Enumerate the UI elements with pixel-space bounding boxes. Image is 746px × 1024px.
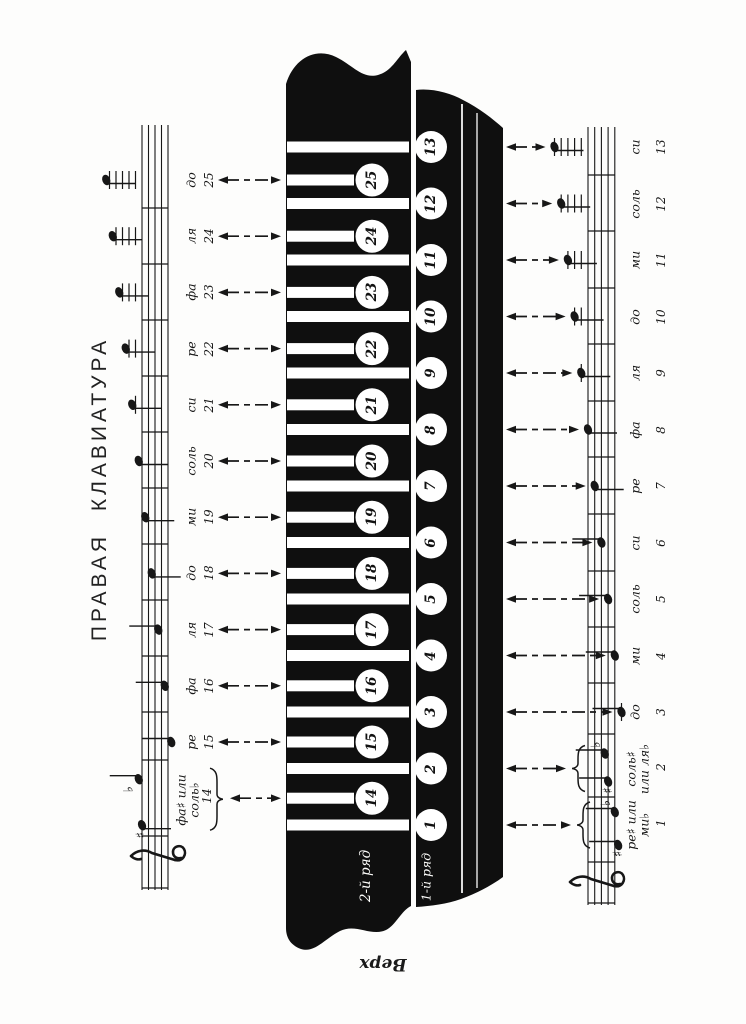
- note-head: [120, 342, 131, 355]
- note-head: [582, 423, 593, 436]
- note-brace: [572, 746, 585, 792]
- note-head: [140, 511, 151, 524]
- key-bar-row2: [287, 231, 354, 242]
- left-arrow-head: [271, 345, 281, 353]
- note-number-label: 12: [654, 196, 668, 211]
- button-number: 6: [423, 538, 439, 547]
- right-arrow-head: [556, 313, 566, 321]
- note-number-label: 6: [654, 539, 668, 547]
- button-number: 17: [364, 620, 380, 639]
- treble-clef-stroke: [173, 846, 185, 860]
- note-name-label: ре: [184, 341, 199, 356]
- note-number-label: 17: [202, 622, 216, 637]
- note-head: [609, 649, 620, 662]
- note-name-label: си: [184, 397, 199, 412]
- button-number: 20: [364, 452, 380, 471]
- note-name-label: ми: [628, 646, 643, 664]
- note-number-label: 10: [654, 309, 668, 324]
- note-head: [127, 398, 138, 411]
- key-bar-row1: [287, 424, 409, 435]
- key-bar-row1: [287, 763, 409, 774]
- note-head: [166, 736, 177, 749]
- orientation-label-top: Верх: [359, 954, 406, 974]
- key-bar-row2: [287, 287, 354, 298]
- note-name-label: ля: [628, 365, 643, 381]
- note-number-label: 5: [654, 595, 668, 603]
- keyboard-row2-label: 2-й ряд: [358, 850, 374, 902]
- accidental-sharp: ♯: [601, 787, 616, 793]
- button-number: 4: [423, 651, 439, 660]
- left-arrow-head: [271, 738, 281, 746]
- treble-clef-stroke: [612, 872, 624, 886]
- note-name-label: си: [628, 139, 643, 154]
- note-number-label: 8: [654, 426, 668, 434]
- note-name-label: ми: [184, 508, 199, 526]
- key-bar-row2: [287, 343, 354, 354]
- treble-clef-stroke: [570, 882, 580, 885]
- left-arrow-head: [271, 176, 281, 184]
- accidental-flat: ♭: [599, 800, 614, 806]
- key-bar-row1: [287, 481, 409, 492]
- key-bar-row1: [287, 820, 409, 831]
- note-name-label: до: [628, 309, 643, 324]
- button-number: 23: [364, 283, 380, 302]
- accidental-sharp: ♯: [134, 832, 149, 838]
- note-head: [602, 775, 613, 788]
- note-name-label: до: [184, 566, 199, 581]
- treble-clef-icon: [131, 846, 185, 860]
- accidental-flat: ♭: [122, 786, 137, 792]
- note-number-label: 14: [200, 789, 214, 804]
- scanned-book-page: ♭♯♭♯♭♯ ПРАВАЯ КЛАВИАТУРА 2-й ряд 1-й ряд…: [0, 0, 746, 1024]
- note-head: [101, 174, 112, 187]
- note-name-label: или ля♭: [637, 743, 652, 793]
- note-number-label: 19: [202, 510, 216, 525]
- left-arrow-head: [271, 232, 281, 240]
- note-number-label: 23: [202, 285, 216, 300]
- note-name-label: до: [184, 172, 199, 187]
- note-number-label: 20: [202, 453, 216, 468]
- button-number: 12: [423, 194, 439, 213]
- left-arrow-head: [271, 289, 281, 297]
- note-number-label: 24: [202, 229, 216, 244]
- key-bar-row1: [287, 198, 409, 209]
- button-number: 22: [364, 339, 380, 358]
- note-name-label: фа: [184, 284, 199, 301]
- note-head: [146, 567, 157, 580]
- note-name-label: си: [628, 535, 643, 550]
- left-arrow-head: [271, 626, 281, 634]
- note-head: [114, 286, 125, 299]
- key-bar-row2: [287, 624, 354, 635]
- button-number: 1: [423, 820, 439, 829]
- note-number-label: 1: [654, 819, 668, 827]
- note-name-label: фа: [628, 421, 643, 438]
- key-bar-row2: [287, 568, 354, 579]
- key-bar-row1: [287, 650, 409, 661]
- note-number-label: 16: [202, 678, 216, 693]
- key-bar-row2: [287, 399, 354, 410]
- note-head: [599, 747, 610, 760]
- treble-clef-icon: [570, 872, 624, 886]
- note-number-label: 13: [654, 139, 668, 154]
- note-name-label: ми: [628, 251, 643, 269]
- note-number-label: 3: [654, 708, 668, 716]
- left-arrow-head: [271, 401, 281, 409]
- note-head: [602, 593, 613, 606]
- button-number: 13: [423, 138, 439, 157]
- key-bar-row2: [287, 175, 354, 186]
- button-number: 9: [423, 368, 439, 377]
- button-number: 15: [364, 733, 380, 752]
- key-bar-row2: [287, 456, 354, 467]
- key-bar-row1: [287, 594, 409, 605]
- note-name-label: соль: [628, 584, 643, 613]
- key-bar-row1: [287, 255, 409, 266]
- key-bar-row1: [287, 368, 409, 379]
- note-number-label: 9: [654, 369, 668, 377]
- note-head: [589, 480, 600, 493]
- note-number-label: 18: [202, 566, 216, 581]
- button-number: 7: [423, 481, 439, 490]
- note-number-label: 2: [654, 763, 668, 771]
- note-head: [133, 455, 144, 468]
- note-number-label: 25: [202, 172, 216, 187]
- page-title: ПРАВАЯ КЛАВИАТУРА: [88, 337, 112, 641]
- note-number-label: 22: [202, 341, 216, 356]
- left-arrow-head: [271, 457, 281, 465]
- button-number: 21: [364, 395, 380, 414]
- note-name-label: до: [628, 704, 643, 719]
- note-name-label: ми♭: [637, 813, 652, 837]
- key-bar-row1: [287, 311, 409, 322]
- accidental-sharp: ♯: [611, 851, 626, 857]
- note-head: [136, 819, 147, 832]
- key-bar-row1: [287, 707, 409, 718]
- left-arrow-head: [271, 570, 281, 578]
- note-number-label: 4: [654, 652, 668, 660]
- key-bar-row2: [287, 512, 354, 523]
- button-number: 14: [364, 789, 380, 808]
- note-head: [133, 773, 144, 786]
- button-number: 16: [364, 676, 380, 695]
- button-number: 10: [423, 307, 439, 326]
- note-name-label: соль: [628, 189, 643, 218]
- note-name-label: соль: [184, 446, 199, 475]
- left-arrow-head: [271, 513, 281, 521]
- note-number-label: 15: [202, 734, 216, 749]
- key-bar-row1: [287, 142, 409, 153]
- note-number-label: 7: [654, 482, 668, 490]
- button-number: 5: [423, 594, 439, 603]
- button-number: 18: [364, 564, 380, 583]
- note-name-label: ля: [184, 621, 199, 637]
- right-arrow-head: [596, 652, 606, 660]
- key-bar-row1: [287, 537, 409, 548]
- note-head: [107, 230, 118, 243]
- note-name-label: ля: [184, 228, 199, 244]
- button-number: 25: [364, 171, 380, 190]
- note-head: [153, 623, 164, 636]
- button-number: 11: [423, 251, 439, 270]
- accidental-flat: ♭: [589, 741, 604, 747]
- right-arrow-head: [556, 765, 566, 773]
- note-name-label: ре: [628, 478, 643, 493]
- note-number-label: 21: [202, 397, 216, 412]
- key-bar-row2: [287, 737, 354, 748]
- note-number-label: 11: [654, 252, 668, 267]
- note-head: [159, 679, 170, 692]
- button-number: 24: [364, 227, 380, 246]
- button-number: 8: [423, 425, 439, 434]
- keyboard-row1-label: 1-й ряд: [419, 853, 434, 901]
- treble-clef-stroke: [131, 856, 141, 859]
- note-head: [596, 536, 607, 549]
- button-number: 2: [423, 764, 439, 773]
- note-name-label: ре: [184, 734, 199, 749]
- button-number: 19: [364, 508, 380, 527]
- note-name-label: фа: [184, 677, 199, 694]
- key-bar-row2: [287, 793, 354, 804]
- button-number: 3: [423, 707, 439, 716]
- note-head: [613, 839, 624, 852]
- right-arrow-head: [569, 426, 579, 434]
- left-arrow-head: [271, 682, 281, 690]
- key-bar-row2: [287, 680, 354, 691]
- note-head: [609, 806, 620, 819]
